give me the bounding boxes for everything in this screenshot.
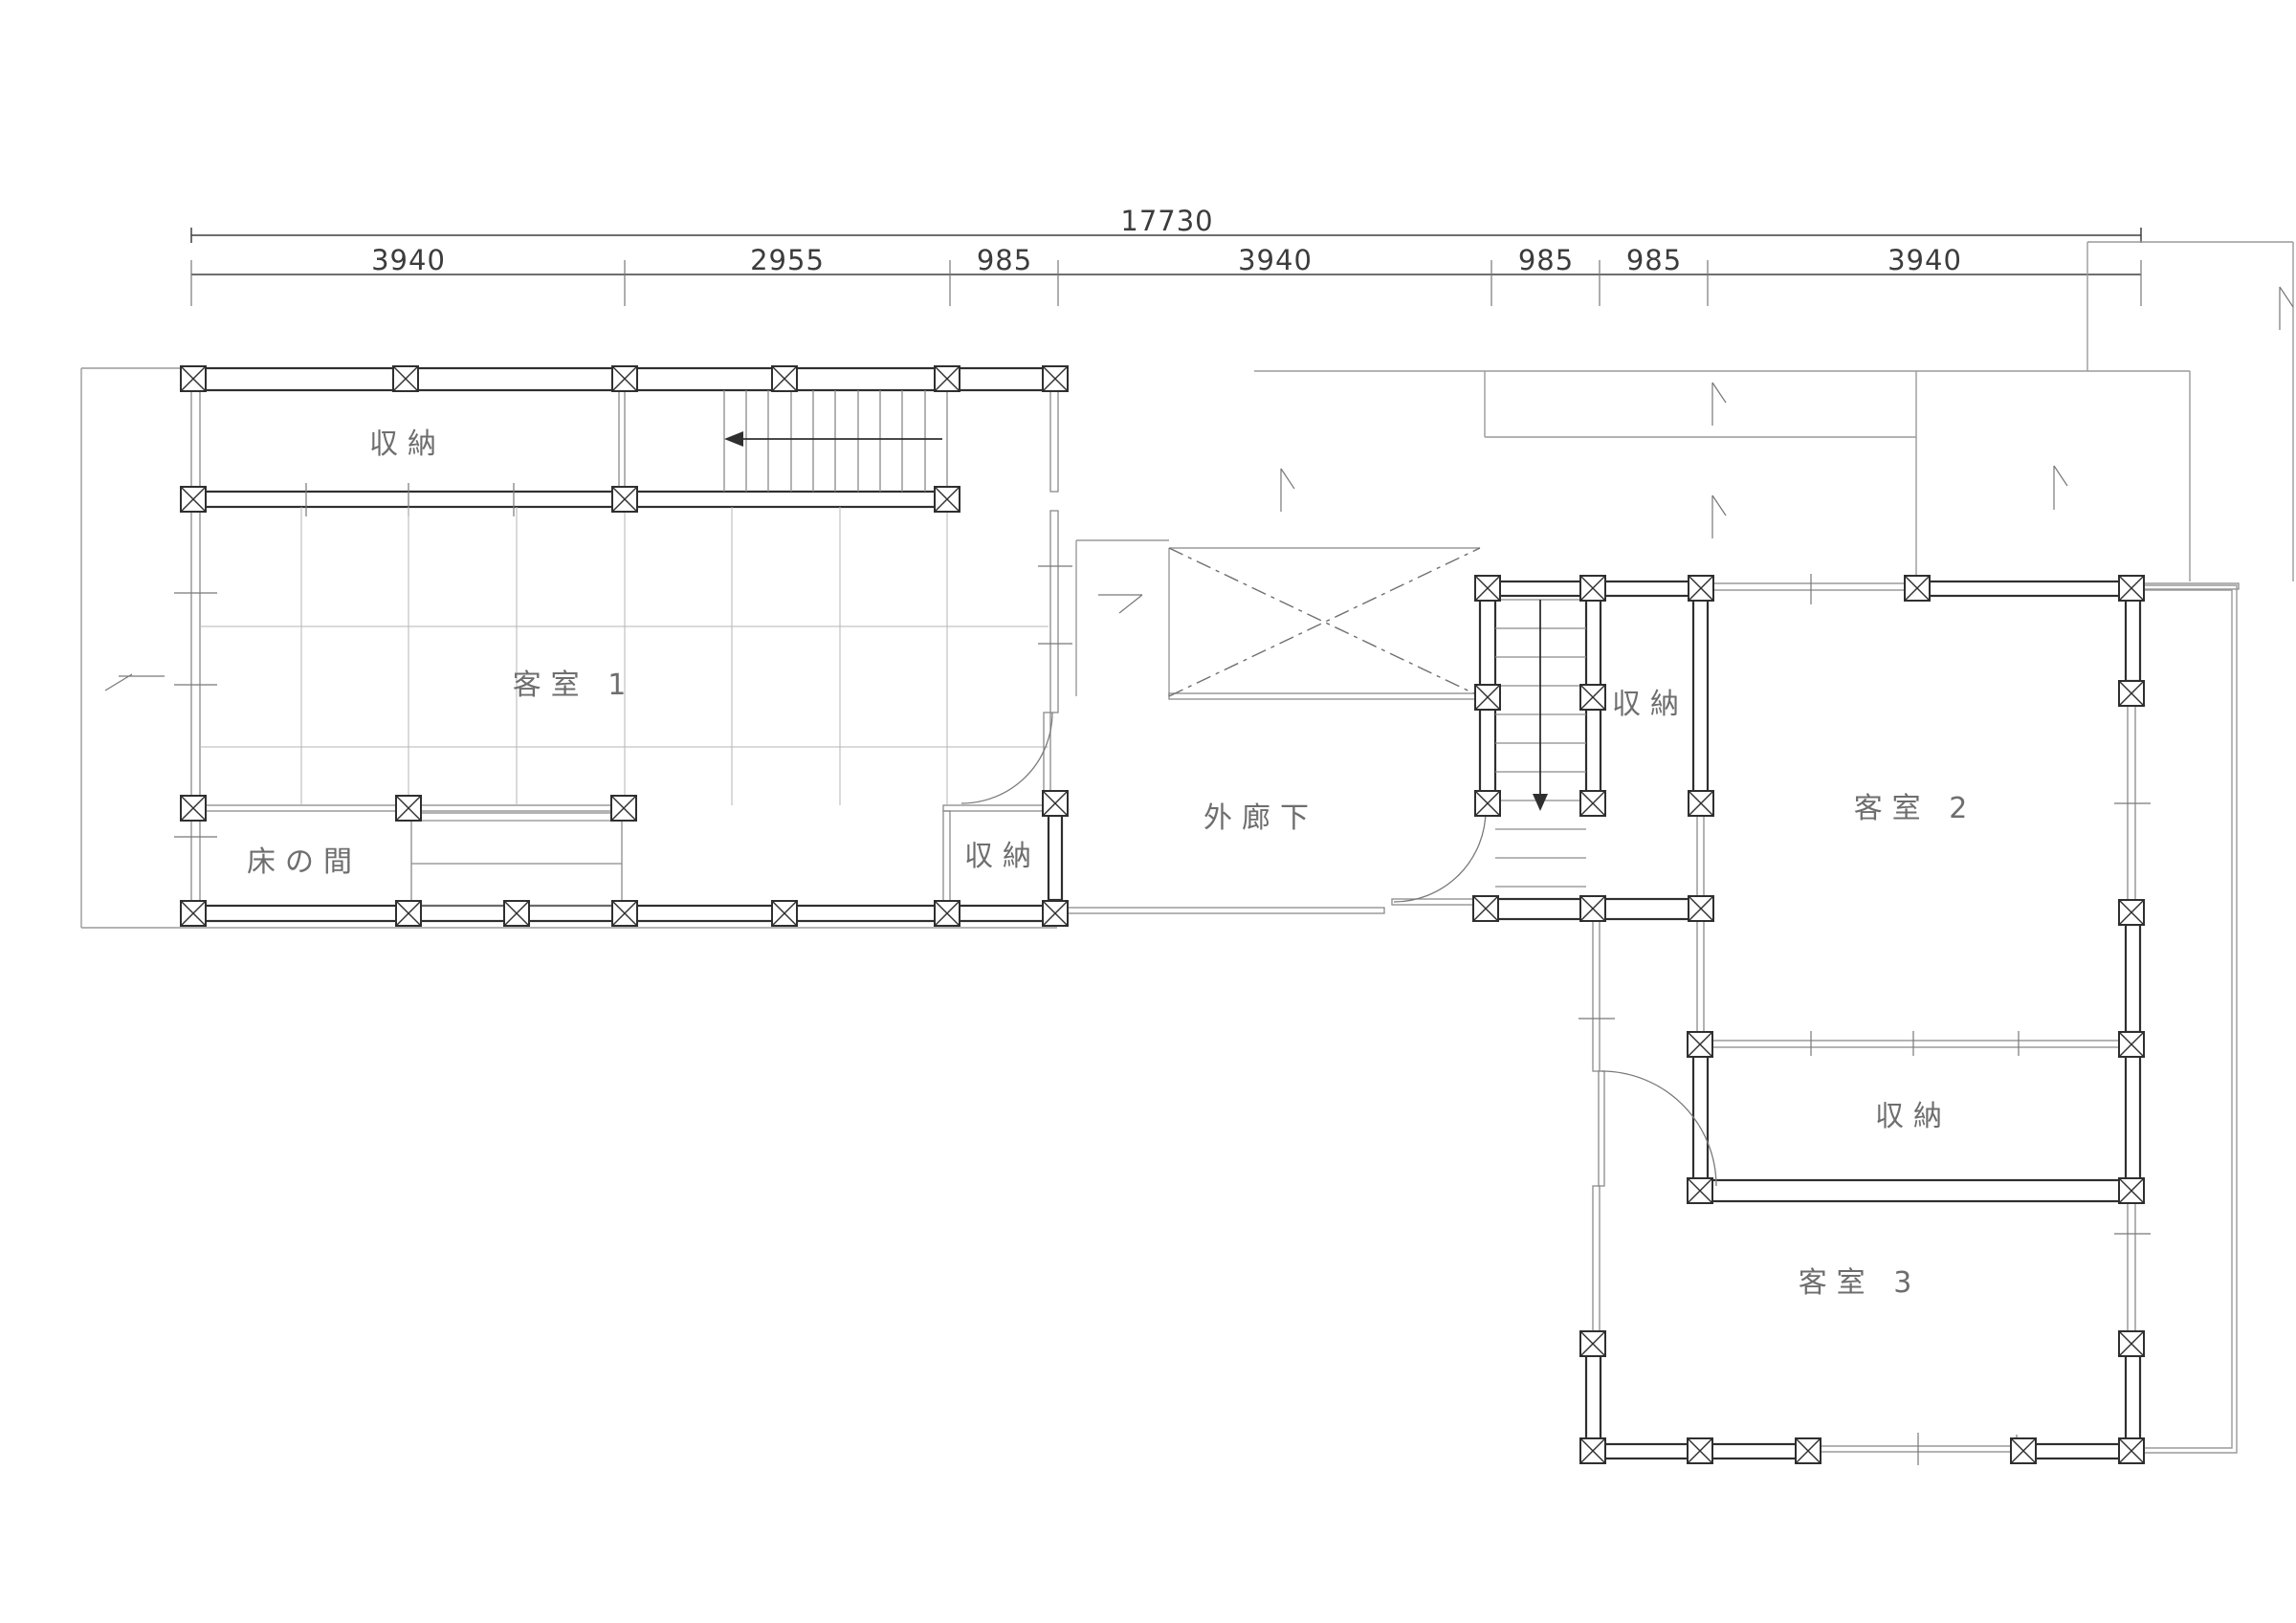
room-label-guest-room-2: 客室 2 xyxy=(1854,784,1977,826)
dimension-seg-3: 985 xyxy=(977,244,1032,276)
dimension-seg-7: 3940 xyxy=(1888,244,1962,276)
door-swing-corridor xyxy=(1394,810,1486,902)
roof-outline xyxy=(1254,242,2293,581)
stairs-lower xyxy=(1495,600,1586,887)
dimension-total: 17730 xyxy=(1120,205,1213,237)
partitions-left-block xyxy=(174,373,1072,906)
dimension-seg-6: 985 xyxy=(1626,244,1682,276)
dimension-seg-5: 985 xyxy=(1518,244,1574,276)
dimension-seg-2: 2955 xyxy=(750,244,825,276)
room-label-storage-by-stairs: 収納 xyxy=(1612,680,1689,722)
dimension-lines xyxy=(191,228,2141,306)
door-leaf-room1 xyxy=(1044,713,1050,801)
door-leaf-room3 xyxy=(1599,1071,1604,1186)
corridor-boundary xyxy=(1062,899,1708,919)
room-label-storage-guest2-side: 収納 xyxy=(1875,1092,1952,1134)
room-label-guest-room-3: 客室 3 xyxy=(1799,1259,1922,1301)
dimension-seg-4: 3940 xyxy=(1238,244,1313,276)
tatami-grid-room1 xyxy=(200,507,1049,805)
void-area xyxy=(1076,540,1480,699)
veranda-outline-right xyxy=(2140,585,2237,1453)
stairs-down-arrowhead xyxy=(1533,794,1548,811)
roof-pitch-marks xyxy=(105,287,2293,691)
stairs-up-arrowhead xyxy=(724,431,743,447)
dimension-seg-1: 3940 xyxy=(371,244,446,276)
stairs-upper xyxy=(724,390,947,492)
veranda-outline-left xyxy=(81,368,1057,928)
walls-right-block xyxy=(1480,581,2140,1459)
room-label-storage-top-left: 収納 xyxy=(369,420,446,462)
room-label-outer-corridor: 外廊下 xyxy=(1203,794,1318,836)
room-label-storage-guest1-side: 収納 xyxy=(964,832,1041,874)
door-swings xyxy=(961,713,1716,1186)
room-label-guest-room-1: 客室 1 xyxy=(513,661,636,703)
room-label-tokonoma: 床の間 xyxy=(247,838,362,880)
floorplan-canvas: 17730 3940 2955 985 3940 985 985 3940 収納… xyxy=(0,0,2296,1623)
door-swing-room1 xyxy=(961,713,1052,803)
